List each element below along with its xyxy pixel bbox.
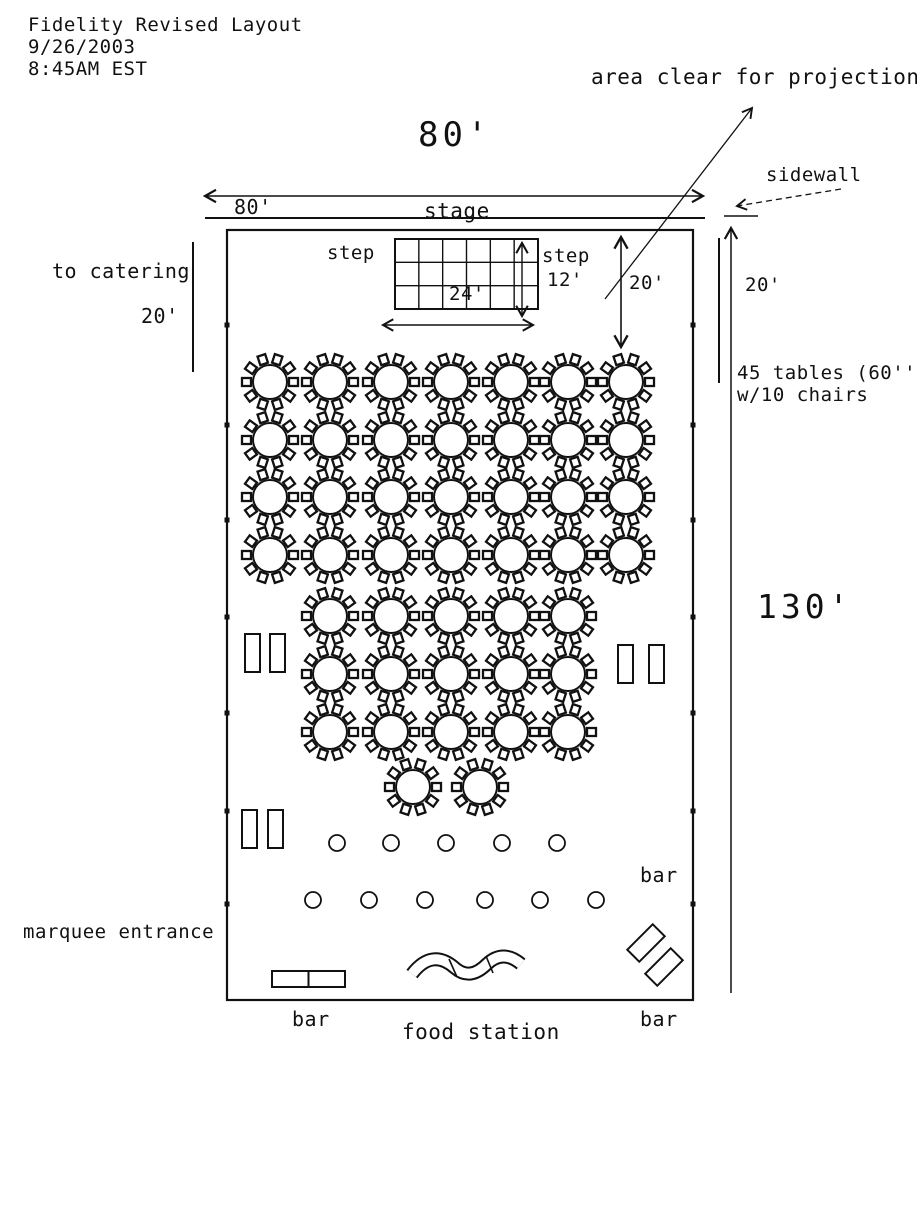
chair <box>470 551 479 559</box>
chair <box>530 670 539 678</box>
chair <box>349 670 358 678</box>
chair <box>393 514 403 525</box>
chair <box>540 378 549 386</box>
catering-20ft-label: 20' <box>141 306 179 327</box>
chair <box>614 527 624 538</box>
chair <box>556 572 566 583</box>
chair <box>570 646 580 657</box>
chair <box>556 354 566 365</box>
chair <box>302 378 311 386</box>
chair <box>393 399 403 410</box>
right-20ft-label: 20' <box>745 276 781 296</box>
chair <box>570 527 580 538</box>
chair <box>453 691 463 702</box>
chair <box>272 354 282 365</box>
wall-tick <box>225 423 230 428</box>
chair <box>470 378 479 386</box>
chair <box>499 646 509 657</box>
bar-bottom-left-label: bar <box>292 1009 330 1030</box>
chair <box>570 572 580 583</box>
chair <box>513 633 523 644</box>
wall-tick <box>691 518 696 523</box>
service-door-rect <box>268 810 283 848</box>
chair <box>423 670 432 678</box>
chair <box>385 783 394 791</box>
chair <box>570 412 580 423</box>
chair <box>302 436 311 444</box>
chair <box>258 412 268 423</box>
drawing-time: 8:45AM EST <box>28 60 147 80</box>
chair <box>242 551 251 559</box>
chair <box>410 670 419 678</box>
chair <box>470 612 479 620</box>
chair <box>318 633 328 644</box>
chair <box>499 514 509 525</box>
chair <box>556 514 566 525</box>
chair <box>513 412 523 423</box>
cocktail-table <box>588 892 604 908</box>
chair <box>614 457 624 468</box>
chair <box>556 749 566 760</box>
drawing-title: Fidelity Revised Layout <box>28 16 303 36</box>
chair <box>530 436 539 444</box>
chair <box>379 354 389 365</box>
chair <box>258 399 268 410</box>
chair <box>453 457 463 468</box>
chair <box>363 728 372 736</box>
chair <box>401 804 411 815</box>
chair <box>439 354 449 365</box>
chair <box>499 633 509 644</box>
wall-tick <box>225 711 230 716</box>
wall-tick <box>691 615 696 620</box>
chair <box>393 588 403 599</box>
chair <box>628 514 638 525</box>
tables-note-line2: w/10 chairs <box>737 386 868 406</box>
chair <box>272 399 282 410</box>
chair <box>318 457 328 468</box>
chair <box>302 493 311 501</box>
chair <box>318 646 328 657</box>
chair <box>513 527 523 538</box>
chair <box>598 551 607 559</box>
tables-note-line1: 45 tables (60''r) <box>737 364 917 384</box>
chair <box>332 749 342 760</box>
chair <box>379 646 389 657</box>
chair <box>318 469 328 480</box>
chair <box>453 704 463 715</box>
wall-tick <box>691 902 696 907</box>
chair <box>318 572 328 583</box>
chair <box>587 551 596 559</box>
chair <box>318 527 328 538</box>
chair <box>530 493 539 501</box>
bar-counter-left <box>272 971 345 987</box>
chair <box>393 457 403 468</box>
cocktail-table <box>361 892 377 908</box>
chair <box>349 728 358 736</box>
chair <box>415 759 425 770</box>
chair <box>482 804 492 815</box>
chair <box>570 457 580 468</box>
chair <box>332 514 342 525</box>
grid-depth-12ft-label: 12' <box>547 271 583 291</box>
chair <box>499 527 509 538</box>
area-clear-label: area clear for projection <box>591 66 917 88</box>
chair <box>483 670 492 678</box>
chair <box>513 354 523 365</box>
chair <box>483 551 492 559</box>
chair <box>628 399 638 410</box>
chair <box>499 399 509 410</box>
chair <box>513 469 523 480</box>
chair <box>483 612 492 620</box>
chair <box>423 551 432 559</box>
chair <box>349 436 358 444</box>
chair <box>302 551 311 559</box>
chair <box>540 612 549 620</box>
chair <box>570 691 580 702</box>
chair <box>318 412 328 423</box>
chair <box>332 704 342 715</box>
chair <box>570 633 580 644</box>
chair <box>439 527 449 538</box>
chair <box>439 704 449 715</box>
chair <box>556 646 566 657</box>
chair <box>453 514 463 525</box>
chair <box>318 749 328 760</box>
chair <box>530 551 539 559</box>
chair <box>393 704 403 715</box>
chair <box>423 728 432 736</box>
cocktail-table <box>494 835 510 851</box>
chair <box>393 691 403 702</box>
chair <box>513 572 523 583</box>
chair <box>349 378 358 386</box>
chair <box>415 804 425 815</box>
chair <box>598 436 607 444</box>
chair <box>423 493 432 501</box>
cocktail-table <box>417 892 433 908</box>
chair <box>513 646 523 657</box>
chair <box>242 436 251 444</box>
chair <box>587 378 596 386</box>
chair <box>645 551 654 559</box>
chair <box>332 469 342 480</box>
chair <box>379 704 389 715</box>
chair <box>453 399 463 410</box>
chair <box>439 633 449 644</box>
chair <box>289 436 298 444</box>
food-station-label: food station <box>402 1021 560 1043</box>
chair <box>570 514 580 525</box>
wall-tick <box>691 809 696 814</box>
chair <box>556 633 566 644</box>
chair <box>302 670 311 678</box>
chair <box>587 436 596 444</box>
chair <box>513 691 523 702</box>
chair <box>289 493 298 501</box>
chair <box>302 728 311 736</box>
chair <box>453 588 463 599</box>
chair <box>379 572 389 583</box>
chair <box>332 399 342 410</box>
chair <box>570 469 580 480</box>
chair <box>379 514 389 525</box>
chair <box>432 783 441 791</box>
chair <box>423 436 432 444</box>
chair <box>645 436 654 444</box>
width-dim-label-large: 80' <box>418 118 491 154</box>
chair <box>453 572 463 583</box>
chair <box>349 551 358 559</box>
event-layout-diagram: Fidelity Revised Layout 9/26/2003 8:45AM… <box>0 0 917 1224</box>
chair <box>393 412 403 423</box>
chair <box>439 749 449 760</box>
chair <box>379 691 389 702</box>
chair <box>363 551 372 559</box>
cocktail-table <box>305 892 321 908</box>
chair <box>483 728 492 736</box>
chair <box>453 646 463 657</box>
chair <box>530 378 539 386</box>
chair <box>332 646 342 657</box>
chair <box>289 551 298 559</box>
chair <box>628 412 638 423</box>
grid-width-24ft-label: 24' <box>449 285 485 305</box>
chair <box>318 588 328 599</box>
chair <box>349 612 358 620</box>
chair <box>470 670 479 678</box>
chair <box>513 588 523 599</box>
marquee-entrance-label: marquee entrance <box>23 923 214 943</box>
chair <box>453 527 463 538</box>
chair <box>439 588 449 599</box>
chair <box>540 670 549 678</box>
chair <box>332 691 342 702</box>
chair <box>379 412 389 423</box>
wall-tick <box>225 323 230 328</box>
chair <box>332 572 342 583</box>
chair <box>379 588 389 599</box>
chair <box>410 378 419 386</box>
chair <box>393 749 403 760</box>
chair <box>453 749 463 760</box>
chair <box>470 436 479 444</box>
chair <box>318 704 328 715</box>
chair <box>272 572 282 583</box>
chair <box>482 759 492 770</box>
chair <box>628 572 638 583</box>
chair <box>598 493 607 501</box>
chair <box>614 469 624 480</box>
chair <box>483 436 492 444</box>
chair <box>499 457 509 468</box>
chair <box>332 457 342 468</box>
chair <box>363 378 372 386</box>
chair <box>439 412 449 423</box>
cocktail-table <box>383 835 399 851</box>
chair <box>393 469 403 480</box>
chair <box>570 588 580 599</box>
chair <box>332 527 342 538</box>
chair <box>556 457 566 468</box>
wall-tick <box>225 902 230 907</box>
chair <box>499 783 508 791</box>
chair <box>363 670 372 678</box>
chair <box>379 469 389 480</box>
chair <box>499 691 509 702</box>
cocktail-table <box>438 835 454 851</box>
chair <box>439 469 449 480</box>
bar-bottom-right-label: bar <box>640 1009 678 1030</box>
chair <box>513 704 523 715</box>
chair <box>499 354 509 365</box>
chair <box>258 527 268 538</box>
chair <box>614 412 624 423</box>
chair <box>258 469 268 480</box>
chair <box>499 704 509 715</box>
chair <box>363 612 372 620</box>
chair <box>318 354 328 365</box>
chair <box>379 399 389 410</box>
chair <box>410 436 419 444</box>
chair <box>628 527 638 538</box>
bar-right-label: bar <box>640 865 678 886</box>
wall-tick <box>691 711 696 716</box>
chair <box>570 399 580 410</box>
chair <box>439 646 449 657</box>
step-right-label: step <box>542 247 590 267</box>
chair <box>410 728 419 736</box>
chair <box>499 469 509 480</box>
chair <box>332 633 342 644</box>
chair <box>332 354 342 365</box>
wall-tick <box>225 809 230 814</box>
chair <box>499 412 509 423</box>
chair <box>393 633 403 644</box>
chair <box>258 514 268 525</box>
chair <box>570 749 580 760</box>
sidewall-label: sidewall <box>766 166 862 186</box>
chair <box>540 728 549 736</box>
chair <box>556 412 566 423</box>
clear-20ft-label: 20' <box>629 274 665 294</box>
chair <box>439 399 449 410</box>
chair <box>439 514 449 525</box>
chair <box>349 493 358 501</box>
chair <box>410 551 419 559</box>
chair <box>379 749 389 760</box>
wall-tick <box>691 323 696 328</box>
chair <box>468 759 478 770</box>
chair <box>363 493 372 501</box>
service-door-rect <box>245 634 260 672</box>
service-door-rect <box>270 634 285 672</box>
chair <box>628 354 638 365</box>
chair <box>628 457 638 468</box>
stage-label: stage <box>424 200 490 222</box>
chair <box>570 354 580 365</box>
chair <box>318 691 328 702</box>
chair <box>499 588 509 599</box>
chair <box>540 551 549 559</box>
chair <box>645 493 654 501</box>
chair <box>645 378 654 386</box>
chair <box>614 399 624 410</box>
step-left-label: step <box>327 244 375 264</box>
chair <box>363 436 372 444</box>
chair <box>598 378 607 386</box>
chair <box>410 493 419 501</box>
cocktail-table <box>329 835 345 851</box>
chair <box>453 633 463 644</box>
chair <box>530 728 539 736</box>
chair <box>272 457 282 468</box>
chair <box>540 493 549 501</box>
chair <box>540 436 549 444</box>
width-dim-label-small: 80' <box>234 197 272 218</box>
chair <box>556 527 566 538</box>
chair <box>587 612 596 620</box>
chair <box>513 457 523 468</box>
sidewall-callout-arrow <box>737 189 841 206</box>
chair <box>483 493 492 501</box>
chair <box>439 572 449 583</box>
chair <box>393 527 403 538</box>
height-dim-label: 130' <box>757 590 852 625</box>
chair <box>468 804 478 815</box>
chair <box>302 612 311 620</box>
chair <box>499 572 509 583</box>
chair <box>556 588 566 599</box>
chair <box>513 749 523 760</box>
chair <box>556 469 566 480</box>
chair <box>393 646 403 657</box>
chair <box>470 728 479 736</box>
wall-tick <box>225 518 230 523</box>
chair <box>272 514 282 525</box>
chair <box>483 378 492 386</box>
chair <box>453 354 463 365</box>
chair <box>614 572 624 583</box>
chair <box>289 378 298 386</box>
wall-tick <box>225 615 230 620</box>
chair <box>318 399 328 410</box>
chair <box>470 493 479 501</box>
chair <box>258 457 268 468</box>
chair <box>587 728 596 736</box>
chair <box>439 691 449 702</box>
drawing-date: 9/26/2003 <box>28 38 135 58</box>
chair <box>556 704 566 715</box>
wall-tick <box>691 423 696 428</box>
chair <box>379 457 389 468</box>
service-door-rect <box>242 810 257 848</box>
chair <box>393 354 403 365</box>
chair <box>332 412 342 423</box>
chair <box>332 588 342 599</box>
service-door-rect <box>618 645 633 683</box>
chair <box>258 354 268 365</box>
chair <box>452 783 461 791</box>
chair <box>318 514 328 525</box>
chair <box>530 612 539 620</box>
chair <box>401 759 411 770</box>
chair <box>570 704 580 715</box>
chair <box>423 612 432 620</box>
chair <box>258 572 268 583</box>
